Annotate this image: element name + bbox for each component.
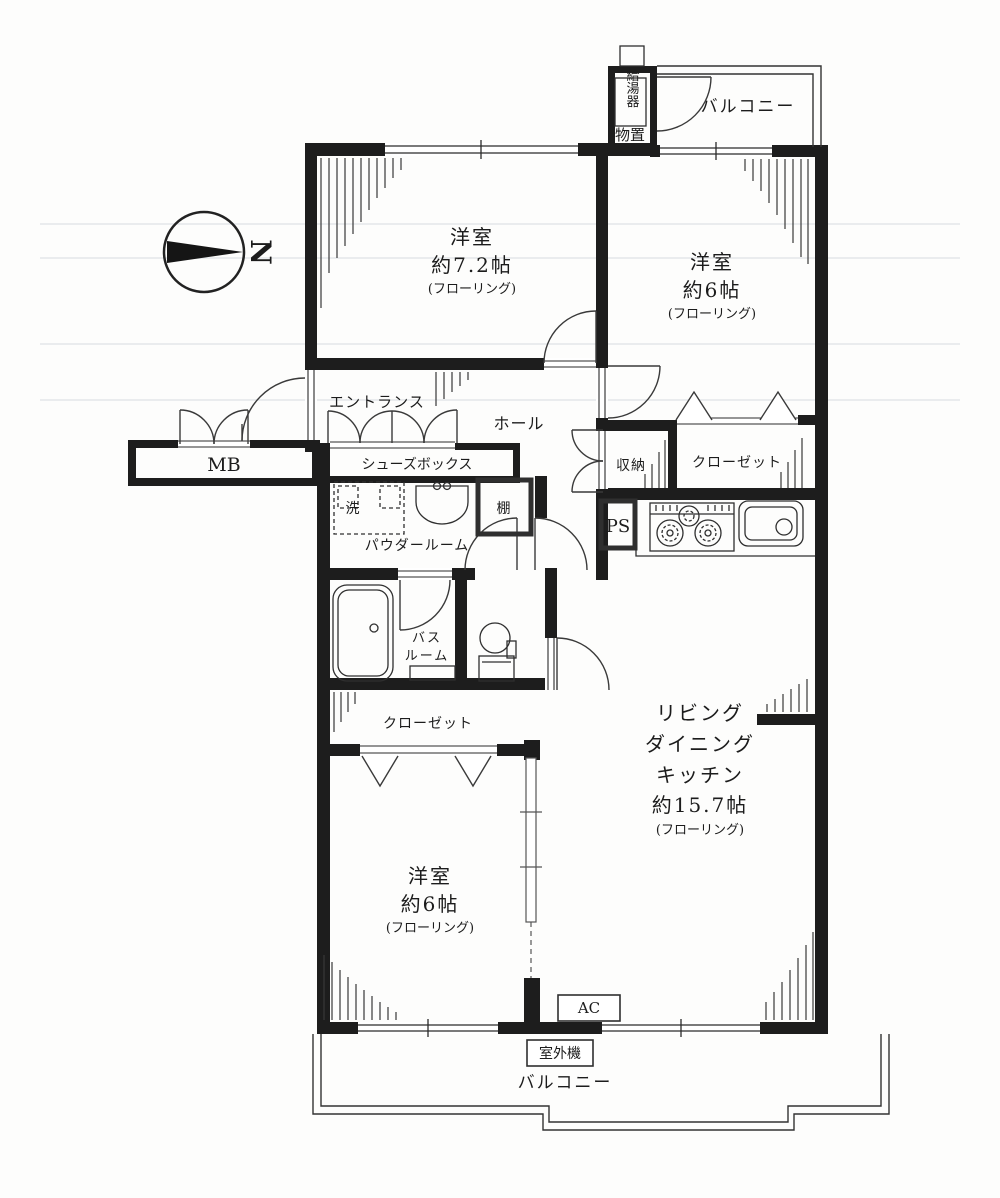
label-bedroom-upper-floor: (フローリング) <box>668 307 756 322</box>
label-ldk-line2: ダイニング <box>645 732 755 756</box>
hatch-bedroom-main <box>321 158 401 308</box>
label-mb: MB <box>207 454 240 476</box>
washer-box <box>334 482 404 534</box>
compass-north-label: N <box>244 239 277 265</box>
hatch-shuno <box>645 440 665 488</box>
bath-door <box>400 580 450 630</box>
floor-plan-svg: N 洋室 約7.2帖 (フローリング) 洋室 約6帖 (フローリング) 洋室 約… <box>0 0 1000 1198</box>
label-shuno: 収納 <box>616 458 646 474</box>
label-ac: AC <box>577 999 600 1017</box>
powder-room-door <box>465 518 517 570</box>
toilet-door <box>557 638 609 690</box>
label-outdoor-unit: 室外機 <box>539 1045 581 1062</box>
label-powder-room: パウダールーム <box>365 538 470 554</box>
floor-plan-page: N 洋室 約7.2帖 (フローリング) 洋室 約6帖 (フローリング) 洋室 約… <box>0 0 1000 1198</box>
label-ldk-floor: (フローリング) <box>656 823 744 838</box>
label-closet-upper: クローゼット <box>692 455 782 471</box>
label-bedroom-upper-size: 約6帖 <box>683 278 742 302</box>
label-mono-oki: 物置 <box>615 126 645 144</box>
label-bathroom-2: ルーム <box>405 649 450 664</box>
hatch-bedroom-upper <box>745 159 808 264</box>
hatch-ldk-stub <box>767 679 807 712</box>
bedroom-upper-door <box>608 366 660 418</box>
hatch-bedroom-lower <box>324 955 396 1020</box>
hatch-hall-step <box>436 372 468 406</box>
bathtub <box>333 585 393 681</box>
sliding-door <box>520 758 542 978</box>
shoes-box-doors <box>328 410 457 443</box>
label-bedroom-lower-size: 約6帖 <box>401 892 460 916</box>
hatch-closet-lower <box>334 692 355 732</box>
hatch-ldk-bottom <box>766 932 813 1020</box>
label-balcony-upper: バルコニー <box>701 97 796 117</box>
label-water-heater: 給湯器 <box>624 69 640 109</box>
label-bedroom-lower-name: 洋室 <box>408 864 452 888</box>
label-bathroom-1: バス <box>412 631 442 646</box>
bedroom-main-door <box>544 311 596 363</box>
toilet <box>479 623 516 681</box>
walls <box>128 66 828 1034</box>
label-bedroom-main-name: 洋室 <box>450 225 494 249</box>
compass-needle <box>167 241 243 263</box>
stove <box>650 503 734 551</box>
label-ldk-size: 約15.7帖 <box>652 793 749 817</box>
door-arcs <box>180 77 711 690</box>
label-shelf: 棚 <box>497 501 512 517</box>
label-bedroom-upper-name: 洋室 <box>690 250 734 274</box>
labels: 洋室 約7.2帖 (フローリング) 洋室 約6帖 (フローリング) 洋室 約6帖… <box>207 69 795 1094</box>
vent-box <box>620 46 644 66</box>
label-bedroom-lower-floor: (フローリング) <box>386 921 474 936</box>
kitchen-sink <box>739 501 803 546</box>
bath-counter <box>410 666 455 680</box>
label-bedroom-main-floor: (フローリング) <box>428 282 516 297</box>
label-ldk-line1: リビング <box>656 701 744 725</box>
front-door <box>242 378 305 441</box>
label-balcony-lower: バルコニー <box>518 1073 613 1093</box>
label-washer: 洗 <box>346 501 361 517</box>
label-bedroom-main-size: 約7.2帖 <box>431 253 513 277</box>
label-shoes-box: シューズボックス <box>362 457 473 473</box>
mb-double-doors <box>180 410 248 444</box>
label-ps: PS <box>606 516 630 537</box>
label-hall: ホール <box>493 414 544 433</box>
corridor-door <box>535 518 587 570</box>
label-closet-lower: クローゼット <box>383 716 473 732</box>
label-ldk-line3: キッチン <box>656 763 744 787</box>
hatch-closet-upper <box>781 438 802 488</box>
washbasin <box>416 483 468 525</box>
label-entrance: エントランス <box>329 393 425 411</box>
